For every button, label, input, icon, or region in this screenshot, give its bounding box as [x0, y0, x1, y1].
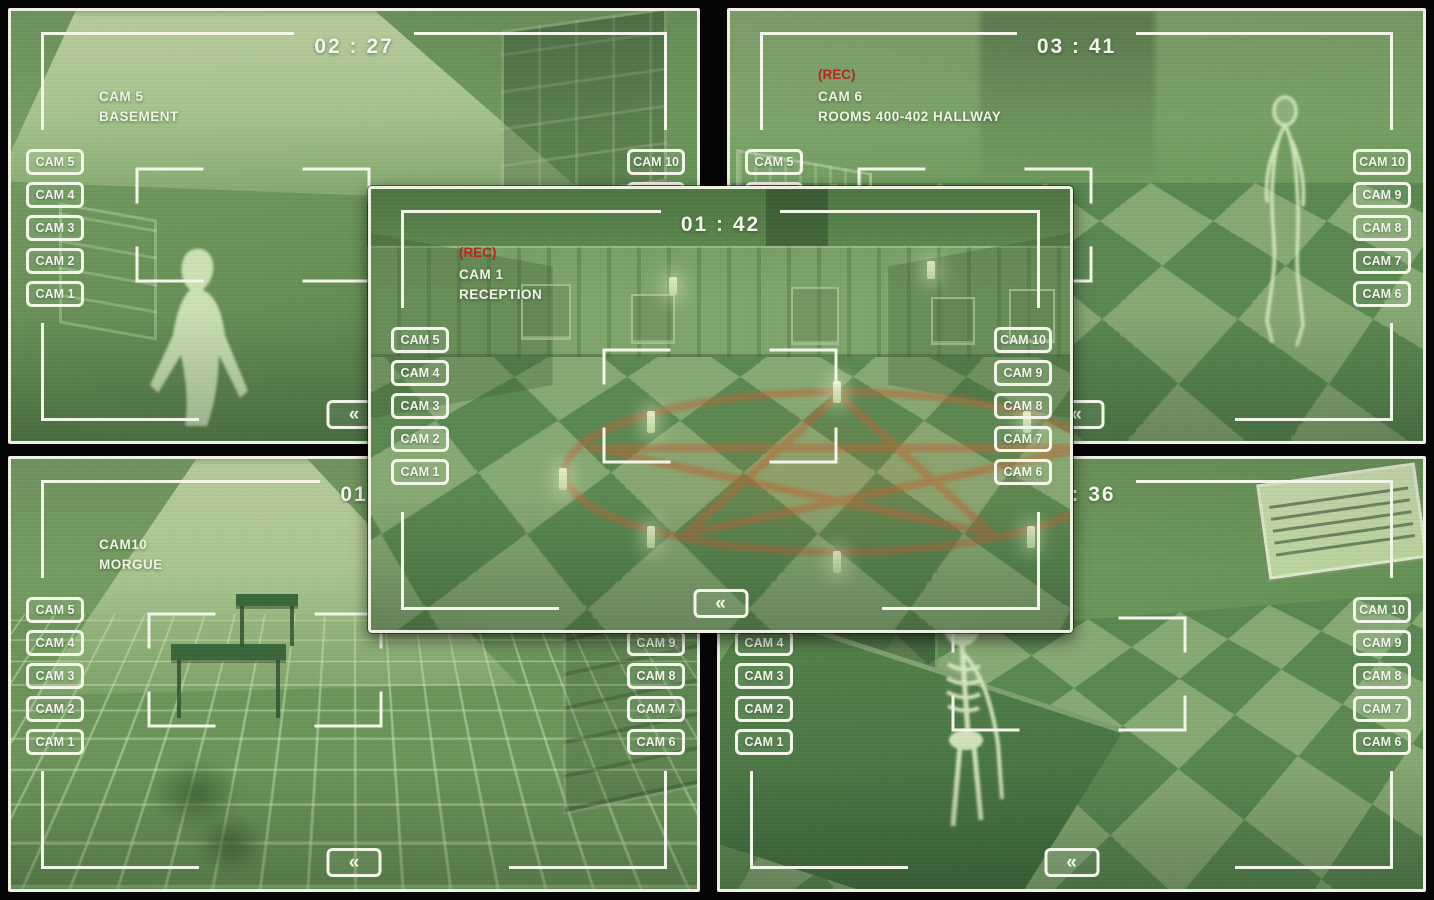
camera-location: RECEPTION	[459, 285, 542, 305]
frame-corner-bottom-right	[1235, 323, 1393, 421]
camera-label: (REC) CAM 6 ROOMS 400-402 HALLWAY	[818, 65, 1001, 126]
frame-corner-bottom-left	[41, 323, 199, 421]
cam-select-button[interactable]: CAM 5	[391, 327, 449, 353]
rec-indicator	[99, 513, 163, 535]
camera-label: (REC) CAM 1 RECEPTION	[459, 243, 542, 304]
reticle-corner	[136, 247, 204, 283]
camera-label: CAM 5 BASEMENT	[99, 65, 179, 126]
back-button[interactable]: «	[1044, 848, 1099, 877]
camera-button-column-left: CAM 5 CAM 4 CAM 3 CAM 2 CAM 1	[391, 327, 449, 492]
timer: 01 : 42	[661, 213, 780, 237]
cam-select-button[interactable]: CAM 9	[627, 630, 685, 656]
rec-indicator: (REC)	[818, 65, 1001, 87]
cam-select-button[interactable]: CAM 5	[745, 149, 803, 175]
cam-select-button[interactable]: CAM 4	[26, 630, 84, 656]
cam-select-button[interactable]: CAM 6	[994, 459, 1052, 485]
rec-indicator	[99, 65, 179, 87]
camera-button-column-right: CAM 10 CAM 9 CAM 8 CAM 7 CAM 6	[994, 327, 1052, 492]
back-button[interactable]: «	[693, 589, 748, 618]
cam-select-button[interactable]: CAM 7	[1353, 696, 1411, 722]
camera-name: CAM 1	[459, 265, 542, 285]
camera-name: CAM 5	[99, 87, 179, 107]
focus-reticle	[952, 617, 1187, 732]
cam-select-button[interactable]: CAM 9	[994, 360, 1052, 386]
cam-select-button[interactable]: CAM 10	[627, 149, 685, 175]
cam-select-button[interactable]: CAM 5	[26, 597, 84, 623]
reticle-corner	[952, 696, 1020, 732]
camera-button-column-left: CAM 5 CAM 4 CAM 3 CAM 2 CAM 1	[26, 597, 84, 762]
frame-corner-right	[1136, 480, 1393, 578]
cam-select-button[interactable]: CAM 3	[735, 663, 793, 689]
camera-panel-center: 01 : 42 (REC) CAM 1 RECEPTION CAM 5 CAM …	[368, 186, 1073, 633]
cam-select-button[interactable]: CAM 1	[391, 459, 449, 485]
focus-reticle	[136, 168, 371, 283]
cam-select-button[interactable]: CAM 7	[994, 426, 1052, 452]
frame-corner-bottom-right	[882, 512, 1040, 610]
cam-select-button[interactable]: CAM 4	[26, 182, 84, 208]
frame-corner-bottom-left	[750, 771, 908, 869]
cam-select-button[interactable]: CAM 3	[26, 215, 84, 241]
cam-select-button[interactable]: CAM 6	[627, 729, 685, 755]
reticle-corner	[303, 168, 371, 204]
reticle-corner	[148, 613, 216, 649]
frame-corner-left	[41, 480, 320, 578]
back-button[interactable]: «	[327, 848, 382, 877]
cam-select-button[interactable]: CAM 3	[391, 393, 449, 419]
frame-corner-right	[414, 32, 667, 130]
camera-name: CAM10	[99, 535, 163, 555]
reticle-corner	[1119, 617, 1187, 653]
cam-select-button[interactable]: CAM 4	[391, 360, 449, 386]
cam-select-button[interactable]: CAM 8	[1353, 215, 1411, 241]
reticle-corner	[1119, 696, 1187, 732]
camera-location: ROOMS 400-402 HALLWAY	[818, 107, 1001, 127]
cam-select-button[interactable]: CAM 2	[26, 696, 84, 722]
cam-select-button[interactable]: CAM 2	[735, 696, 793, 722]
focus-reticle	[148, 613, 383, 728]
reticle-corner	[770, 349, 838, 385]
frame-corner-right	[1136, 32, 1393, 130]
cam-select-button[interactable]: CAM 7	[1353, 248, 1411, 274]
frame-corner-bottom-right	[1235, 771, 1393, 869]
reticle-corner	[603, 349, 671, 385]
cam-select-button[interactable]: CAM 9	[1353, 630, 1411, 656]
focus-reticle	[603, 349, 838, 464]
camera-location: BASEMENT	[99, 107, 179, 127]
frame-corner-bottom-right	[509, 771, 667, 869]
cam-select-button[interactable]: CAM 4	[735, 630, 793, 656]
cam-select-button[interactable]: CAM 10	[1353, 597, 1411, 623]
camera-button-column-left: CAM 5 CAM 4 CAM 3 CAM 2 CAM 1	[26, 149, 84, 314]
reticle-corner	[315, 692, 383, 728]
camera-button-column-right: CAM 10 CAM 9 CAM 8 CAM 7 CAM 6	[1353, 149, 1411, 314]
viewfinder: 01 : 42 (REC) CAM 1 RECEPTION CAM 5 CAM …	[371, 189, 1070, 630]
cam-select-button[interactable]: CAM 6	[1353, 729, 1411, 755]
cam-select-button[interactable]: CAM 8	[627, 663, 685, 689]
cam-select-button[interactable]: CAM 7	[627, 696, 685, 722]
cam-select-button[interactable]: CAM 6	[1353, 281, 1411, 307]
camera-location: MORGUE	[99, 555, 163, 575]
cam-select-button[interactable]: CAM 8	[994, 393, 1052, 419]
frame-corner-bottom-left	[401, 512, 559, 610]
reticle-corner	[148, 692, 216, 728]
security-camera-monitor: 02 : 27 CAM 5 BASEMENT CAM 5 CAM 4 CAM 3…	[0, 0, 1434, 900]
camera-button-column-right: CAM 10 CAM 9 CAM 8 CAM 7 CAM 6	[1353, 597, 1411, 762]
reticle-corner	[136, 168, 204, 204]
rec-indicator: (REC)	[459, 243, 542, 265]
camera-name: CAM 6	[818, 87, 1001, 107]
camera-label: CAM10 MORGUE	[99, 513, 163, 574]
cam-select-button[interactable]: CAM 9	[1353, 182, 1411, 208]
timer: 03 : 41	[1017, 35, 1136, 59]
frame-corner-right	[780, 210, 1040, 308]
cam-select-button[interactable]: CAM 10	[994, 327, 1052, 353]
reticle-corner	[603, 428, 671, 464]
cam-select-button[interactable]: CAM 1	[735, 729, 793, 755]
frame-corner-bottom-left	[41, 771, 199, 869]
cam-select-button[interactable]: CAM 10	[1353, 149, 1411, 175]
cam-select-button[interactable]: CAM 2	[391, 426, 449, 452]
reticle-corner	[770, 428, 838, 464]
reticle-corner	[303, 247, 371, 283]
cam-select-button[interactable]: CAM 1	[26, 281, 84, 307]
cam-select-button[interactable]: CAM 1	[26, 729, 84, 755]
cam-select-button[interactable]: CAM 5	[26, 149, 84, 175]
timer: 02 : 27	[294, 35, 413, 59]
cam-select-button[interactable]: CAM 2	[26, 248, 84, 274]
cam-select-button[interactable]: CAM 8	[1353, 663, 1411, 689]
cam-select-button[interactable]: CAM 3	[26, 663, 84, 689]
